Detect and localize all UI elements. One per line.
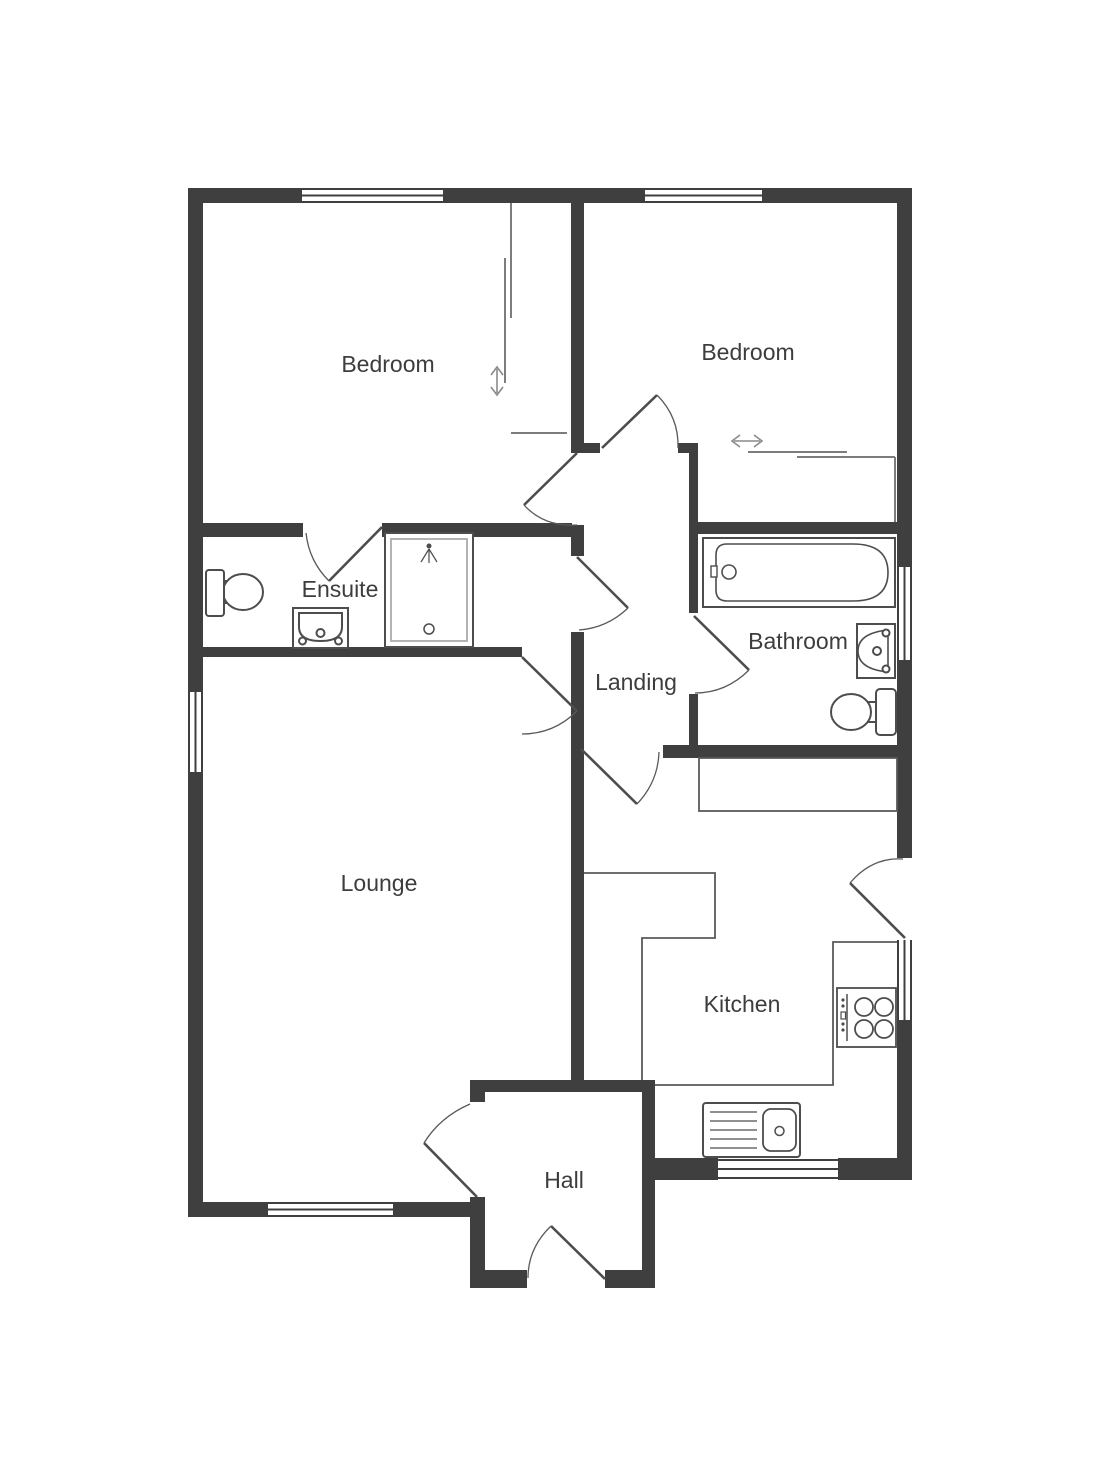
sink-icon <box>293 608 348 648</box>
door-leaf <box>602 395 657 448</box>
wall <box>188 772 203 1217</box>
wall <box>897 1020 912 1180</box>
door-swing-arc <box>695 670 749 693</box>
wall <box>470 1270 527 1288</box>
wall <box>188 188 302 203</box>
sliding-wardrobe-icon <box>505 203 567 433</box>
toilet-icon <box>206 570 263 616</box>
floor-plan-page: Bedroom Bedroom Ensuite Bathroom Landing… <box>0 0 1100 1476</box>
wall <box>897 660 912 858</box>
wall <box>571 525 584 556</box>
counter <box>699 758 897 811</box>
room-label-lounge: Lounge <box>341 870 418 896</box>
toilet-icon <box>831 689 896 735</box>
door-swing-arc <box>524 505 577 525</box>
wall <box>689 443 698 613</box>
door-swing-arc <box>528 1226 551 1278</box>
windows <box>188 188 912 1217</box>
wall <box>571 632 584 1092</box>
wall <box>663 745 897 758</box>
wall <box>571 203 584 443</box>
vertical-double-arrow-icon <box>491 367 503 395</box>
door-swing-arc <box>306 533 329 581</box>
room-label-hall: Hall <box>544 1167 584 1193</box>
window <box>897 567 912 660</box>
wall <box>188 1202 268 1217</box>
arrows <box>491 367 762 447</box>
shower-icon <box>385 533 473 647</box>
room-label-bedroom-2: Bedroom <box>701 339 794 365</box>
wall <box>642 1158 718 1180</box>
room-label-ensuite: Ensuite <box>302 576 379 602</box>
door-leaf <box>551 1226 605 1279</box>
door-swing-arc <box>522 711 577 734</box>
horizontal-double-arrow-icon <box>732 435 762 447</box>
wall <box>188 203 203 692</box>
door-leaf <box>850 883 905 938</box>
counter <box>584 873 715 1080</box>
door-swing-arc <box>850 859 903 883</box>
sliding-wardrobe-icon <box>748 452 895 522</box>
wall <box>762 188 912 203</box>
wall <box>897 203 912 567</box>
sliding-wardrobes <box>505 203 895 522</box>
door-leaf <box>329 527 382 581</box>
wall <box>642 1080 655 1288</box>
window <box>645 188 762 203</box>
door-leaf <box>577 557 628 608</box>
sink-icon <box>857 624 895 678</box>
wall <box>838 1158 912 1180</box>
hob-icon <box>837 988 896 1047</box>
window <box>302 188 443 203</box>
room-label-landing: Landing <box>595 669 677 695</box>
wall <box>470 1080 655 1092</box>
wall <box>443 188 645 203</box>
floor-plan: Bedroom Bedroom Ensuite Bathroom Landing… <box>0 0 1100 1476</box>
door-swing-arc <box>657 395 678 448</box>
window <box>718 1158 838 1180</box>
door-leaf <box>522 657 577 711</box>
door-leaf <box>581 749 637 804</box>
room-label-bedroom-1: Bedroom <box>341 351 434 377</box>
room-label-kitchen: Kitchen <box>704 991 781 1017</box>
wall <box>188 523 303 537</box>
door-swing-arc <box>579 608 628 630</box>
wall <box>571 443 600 453</box>
door-leaf <box>694 616 749 670</box>
wall <box>203 647 522 657</box>
window <box>268 1202 393 1217</box>
door-swing-arc <box>424 1104 470 1143</box>
room-label-bathroom: Bathroom <box>748 628 848 654</box>
wall <box>698 522 897 534</box>
door-leaf <box>424 1143 477 1197</box>
window <box>188 692 203 772</box>
bath-icon <box>703 538 895 607</box>
door-swing-arc <box>637 752 659 804</box>
kitchen-sink-icon <box>703 1103 800 1157</box>
window <box>897 940 912 1020</box>
door-leaf <box>524 453 577 505</box>
kitchen-fixtures <box>584 758 897 1157</box>
walls <box>188 188 912 1288</box>
